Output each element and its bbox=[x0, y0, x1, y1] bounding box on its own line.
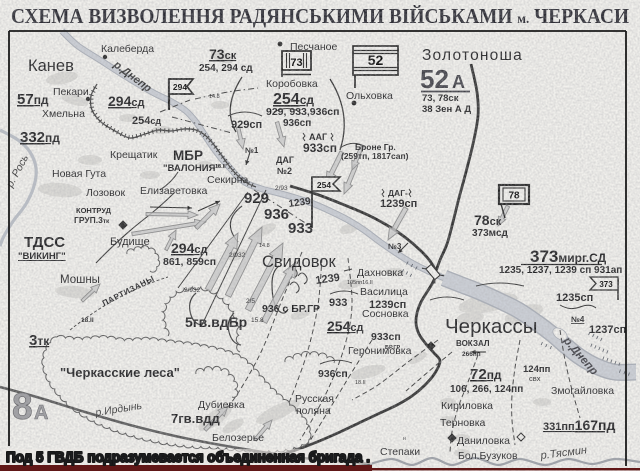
svg-text:Под 5 ГВДБ подразумевается об: Под 5 ГВДБ подразумевается объединенная … bbox=[6, 449, 370, 466]
